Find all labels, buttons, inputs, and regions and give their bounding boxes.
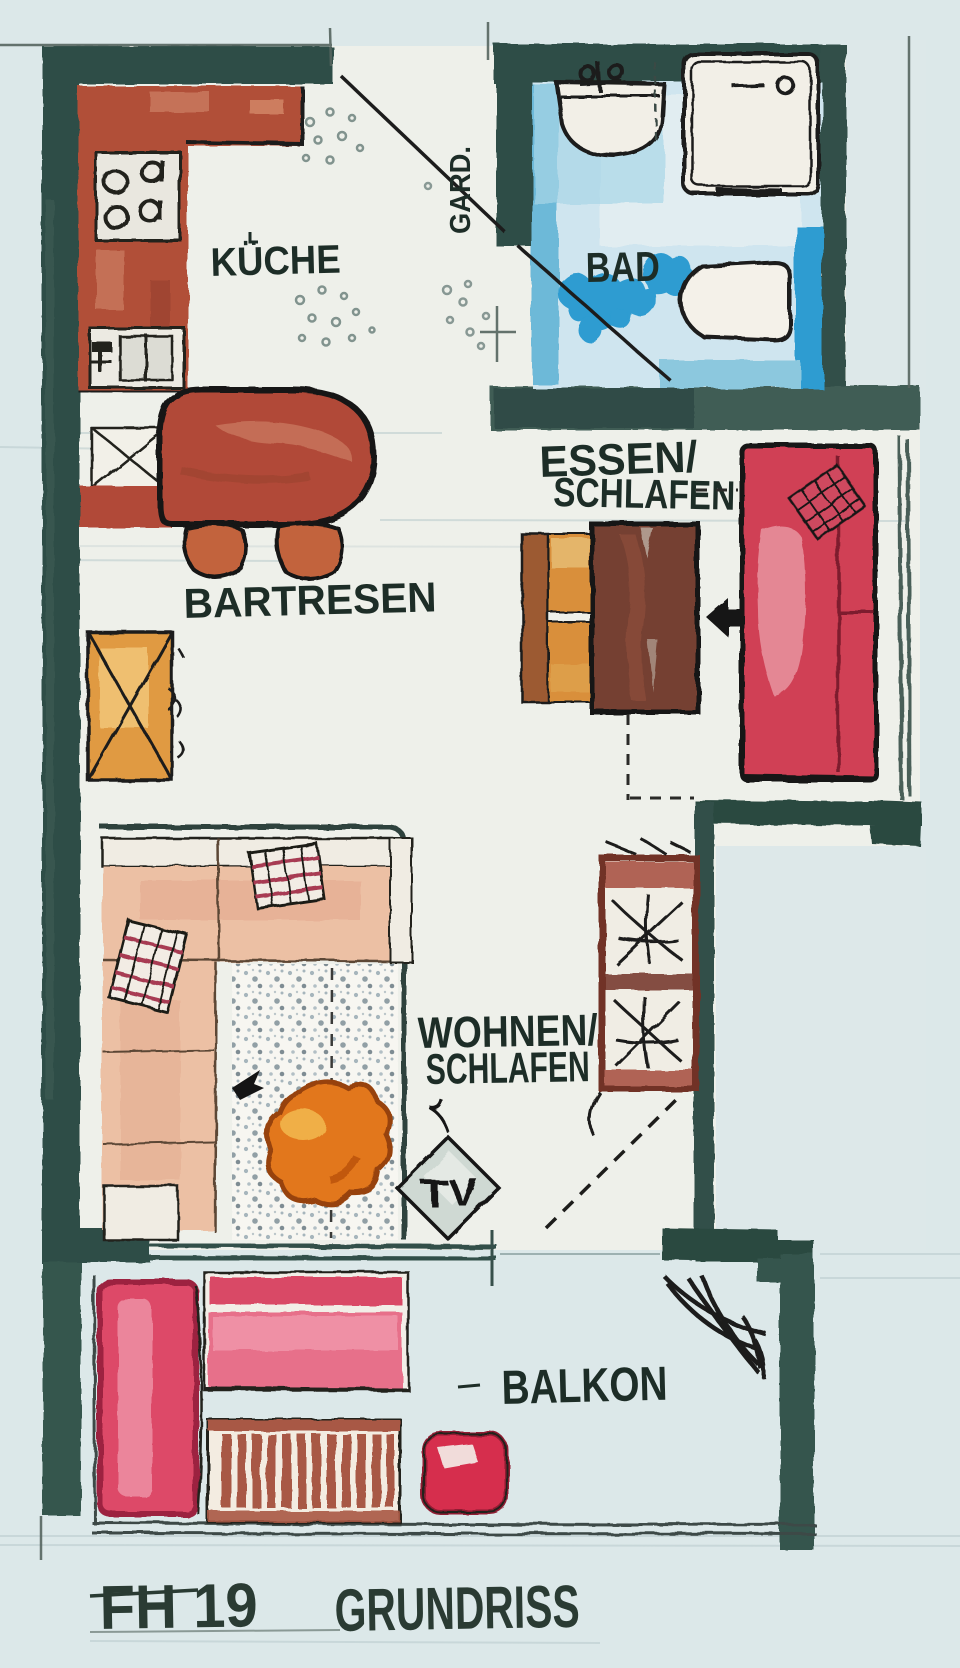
svg-text:BALKON: BALKON	[501, 1358, 668, 1415]
svg-text:GARD.: GARD.	[445, 146, 477, 234]
svg-text:SCHLAFEN: SCHLAFEN	[553, 469, 736, 519]
svg-text:SCHLAFEN: SCHLAFEN	[425, 1043, 590, 1094]
svg-text:BAD: BAD	[585, 243, 660, 291]
svg-text:KÜCHE: KÜCHE	[210, 237, 341, 285]
svg-text:TV: TV	[420, 1173, 479, 1215]
svg-text:GRUNDRISS: GRUNDRISS	[334, 1573, 580, 1644]
svg-text:BARTRESEN: BARTRESEN	[183, 573, 437, 627]
